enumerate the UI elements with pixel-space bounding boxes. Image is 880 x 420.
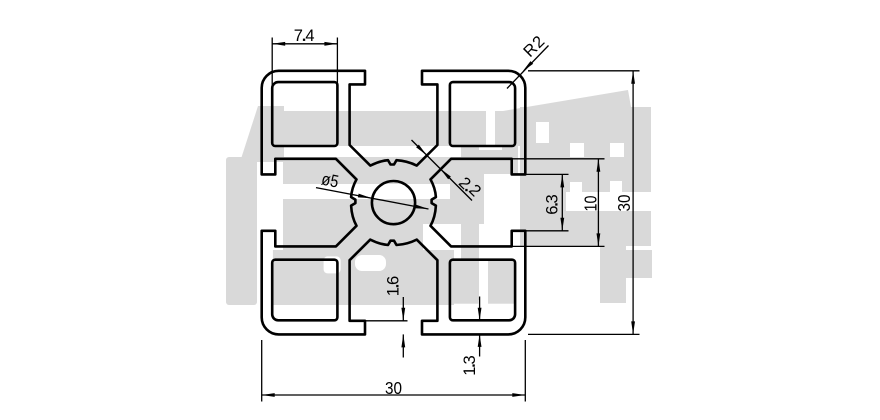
svg-text:4: 4 bbox=[305, 27, 314, 45]
svg-text:1: 1 bbox=[385, 287, 403, 296]
svg-text:30: 30 bbox=[614, 194, 634, 211]
svg-text:10: 10 bbox=[580, 195, 600, 211]
svg-text:6: 6 bbox=[544, 206, 562, 215]
svg-text:3: 3 bbox=[461, 355, 479, 364]
svg-text:1: 1 bbox=[461, 367, 479, 376]
svg-text:6: 6 bbox=[385, 276, 403, 285]
svg-text:7: 7 bbox=[294, 27, 303, 45]
svg-text:30: 30 bbox=[385, 378, 402, 398]
svg-text:3: 3 bbox=[544, 194, 562, 203]
